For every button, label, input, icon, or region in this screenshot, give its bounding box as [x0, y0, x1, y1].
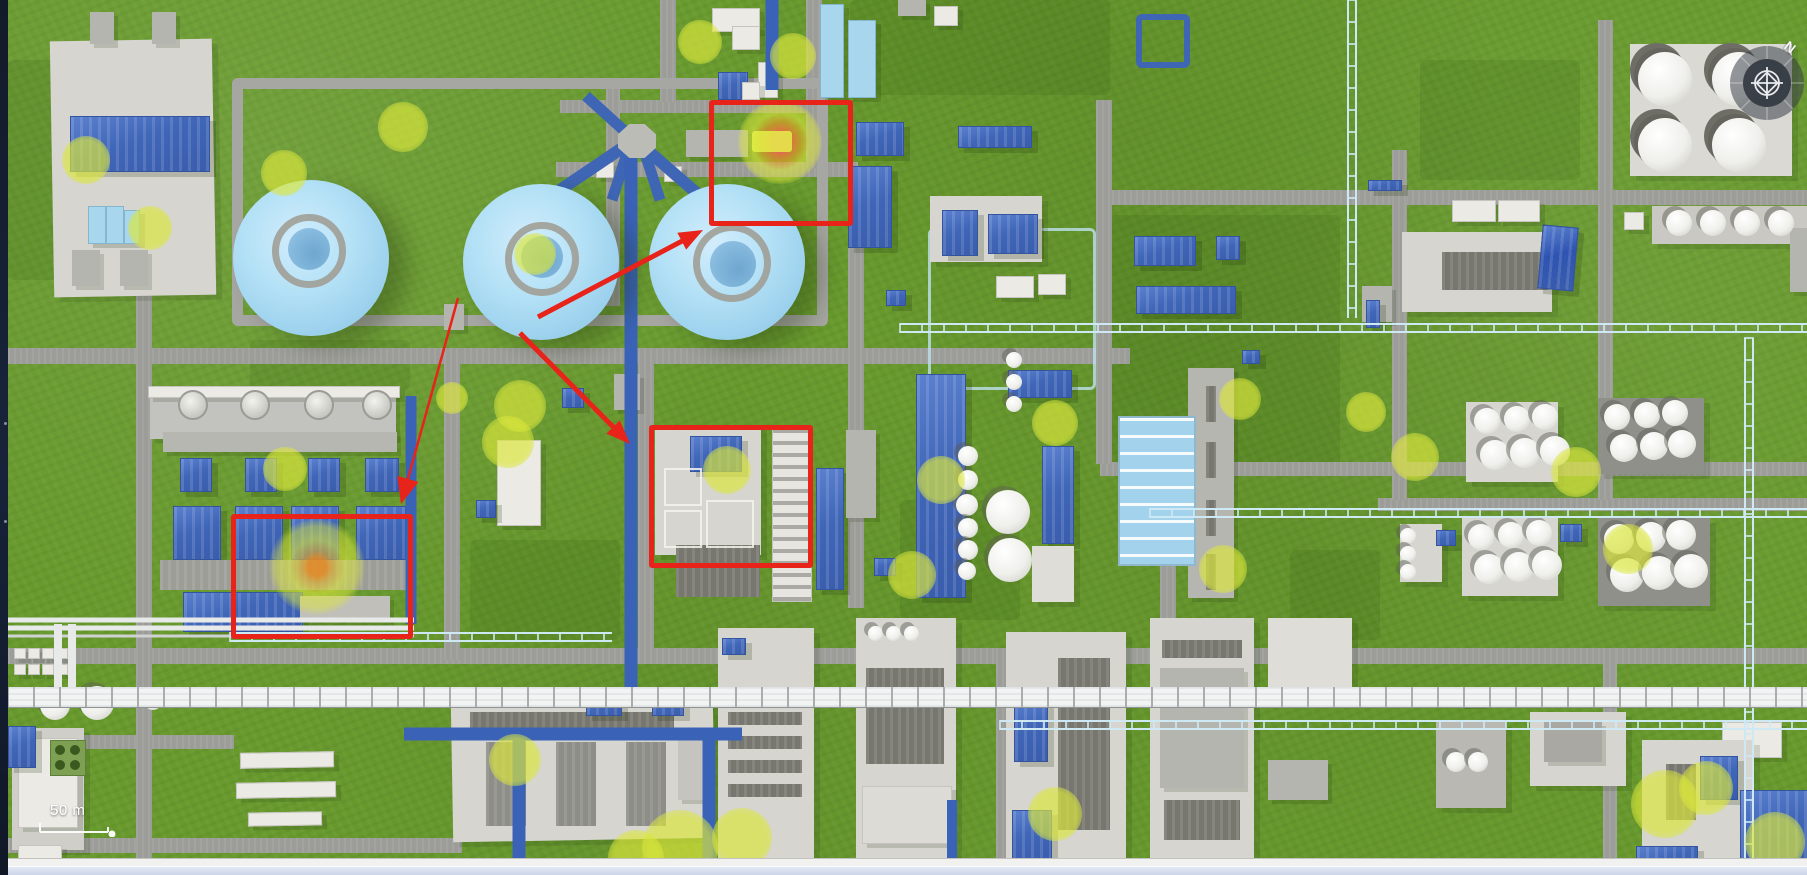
star-dot [4, 422, 7, 425]
annotation-box [649, 425, 813, 568]
compass-dial [1729, 45, 1805, 121]
annotation-box [231, 514, 413, 639]
star-dot [4, 520, 7, 523]
scale-bar-label: 50 m [50, 802, 85, 819]
map-scale-bar: 50 m [36, 802, 126, 838]
scale-bar-bracket [36, 821, 126, 837]
facility-map-viewport[interactable]: N 50 m [0, 0, 1807, 875]
taskbar-edge[interactable] [0, 866, 1807, 875]
compass-widget[interactable]: N [1729, 45, 1805, 121]
annotation-boxes-layer [0, 0, 1807, 875]
left-panel-edge [0, 0, 8, 875]
annotation-box [709, 100, 853, 226]
